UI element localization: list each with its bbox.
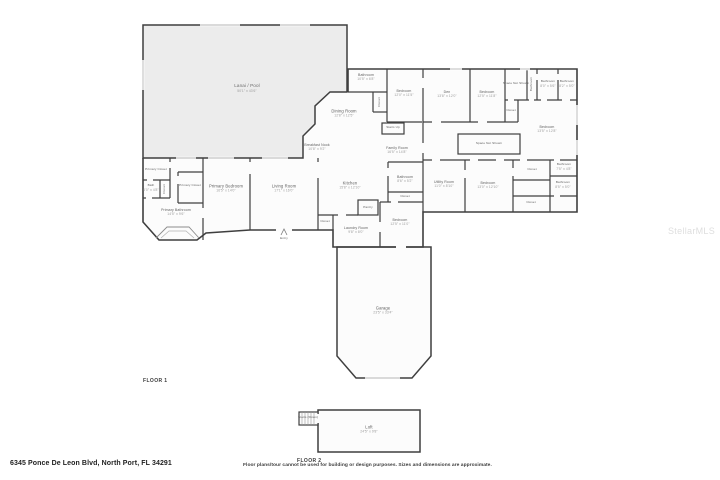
disclaimer-text: Floor plans/tour cannot be used for buil… (243, 463, 492, 468)
mls-watermark: StellarMLS (668, 226, 715, 236)
floor2-footprint (299, 410, 420, 452)
floor1-marker: FLOOR 1 (143, 378, 167, 384)
property-address: 6345 Ponce De Leon Blvd, North Port, FL … (10, 460, 172, 467)
garage-area (337, 247, 431, 378)
floorplan-page: Lanai / Pool50'1" x 43'6"Breakfast Nook1… (0, 0, 720, 480)
floorplan-drawing (0, 0, 720, 480)
